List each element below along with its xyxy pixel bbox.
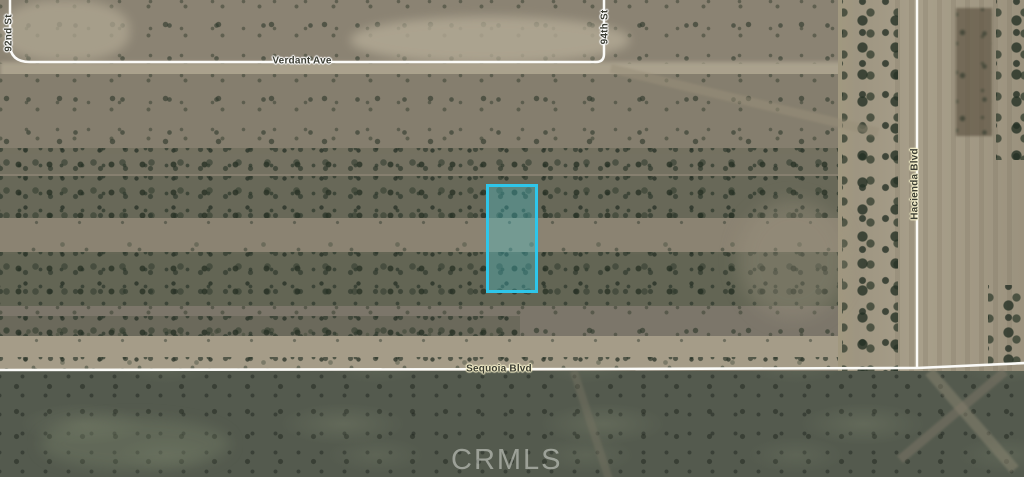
road-label-text: 94th St	[600, 10, 611, 45]
map-canvas[interactable]: 92nd St Verdant Ave 94th St Hacienda Blv…	[0, 0, 1024, 477]
parcel-highlight[interactable]	[486, 184, 538, 293]
road-label-text: Hacienda Blvd	[910, 148, 921, 220]
road-label-text: Verdant Ave	[272, 56, 331, 67]
road-label-text: Sequoia Blvd	[466, 364, 532, 375]
road-label-text: 92nd St	[4, 14, 15, 52]
crmls-watermark: CRMLS	[451, 444, 563, 477]
